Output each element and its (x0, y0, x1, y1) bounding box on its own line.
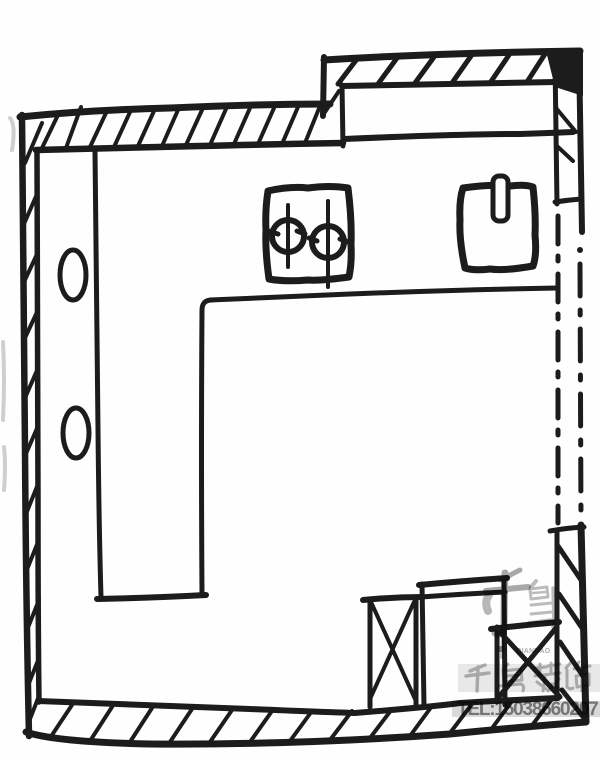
svg-text:QIANDAO: QIANDAO (516, 648, 551, 655)
svg-text:TEL:15038660207: TEL:15038660207 (457, 699, 598, 720)
